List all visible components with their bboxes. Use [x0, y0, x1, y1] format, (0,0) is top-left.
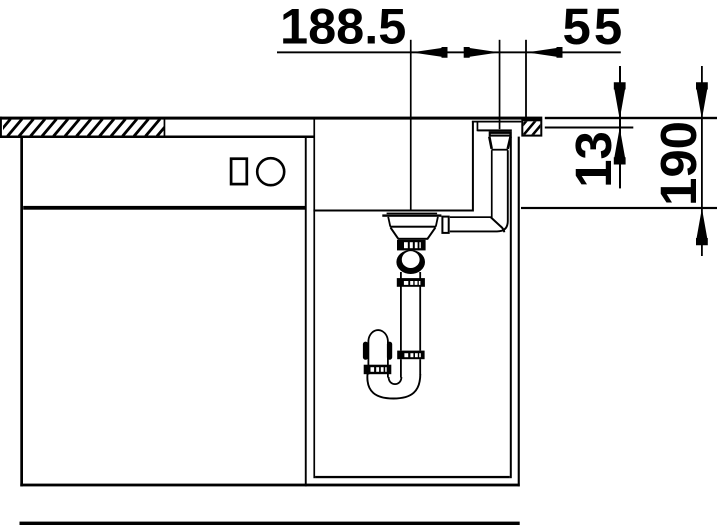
- svg-text:188.5: 188.5: [280, 0, 406, 55]
- svg-text:190: 190: [650, 121, 707, 206]
- svg-text:13: 13: [565, 131, 622, 188]
- svg-text:55: 55: [563, 0, 626, 55]
